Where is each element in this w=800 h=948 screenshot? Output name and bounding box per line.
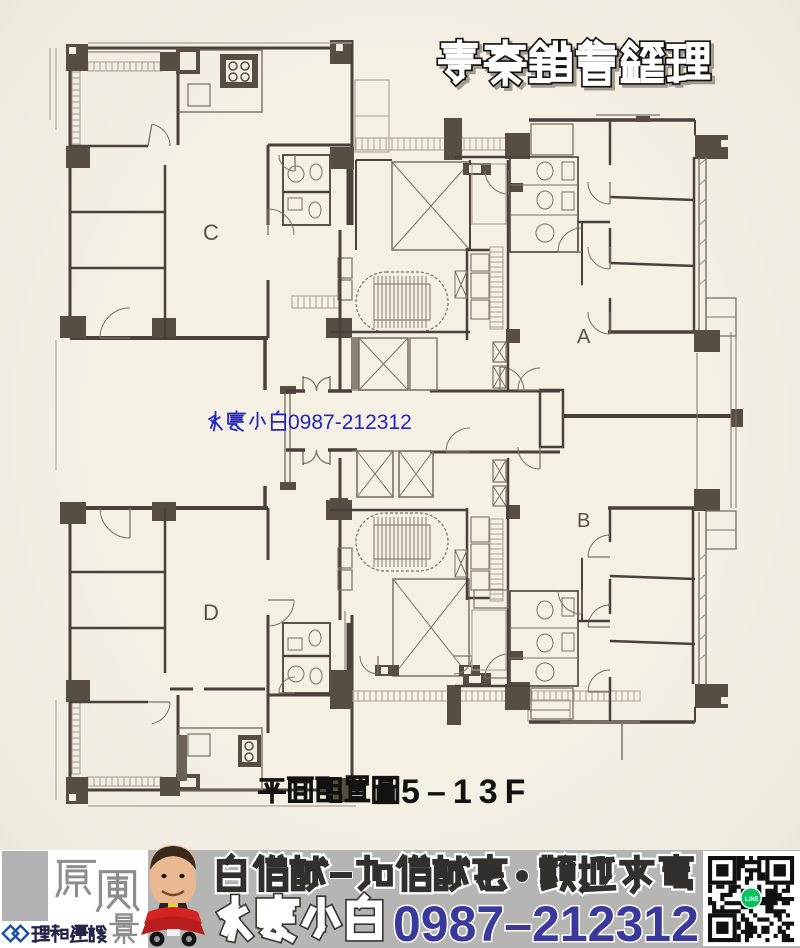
svg-text:B: B bbox=[577, 510, 590, 532]
svg-text:A: A bbox=[577, 326, 591, 348]
svg-text:5–13F: 5–13F bbox=[401, 773, 532, 811]
svg-text:C: C bbox=[203, 220, 219, 245]
svg-text:0987-212312: 0987-212312 bbox=[288, 411, 412, 434]
svg-text:D: D bbox=[203, 600, 219, 625]
svg-text:0987–212312: 0987–212312 bbox=[393, 896, 699, 948]
svg-text:LINE: LINE bbox=[745, 897, 759, 903]
